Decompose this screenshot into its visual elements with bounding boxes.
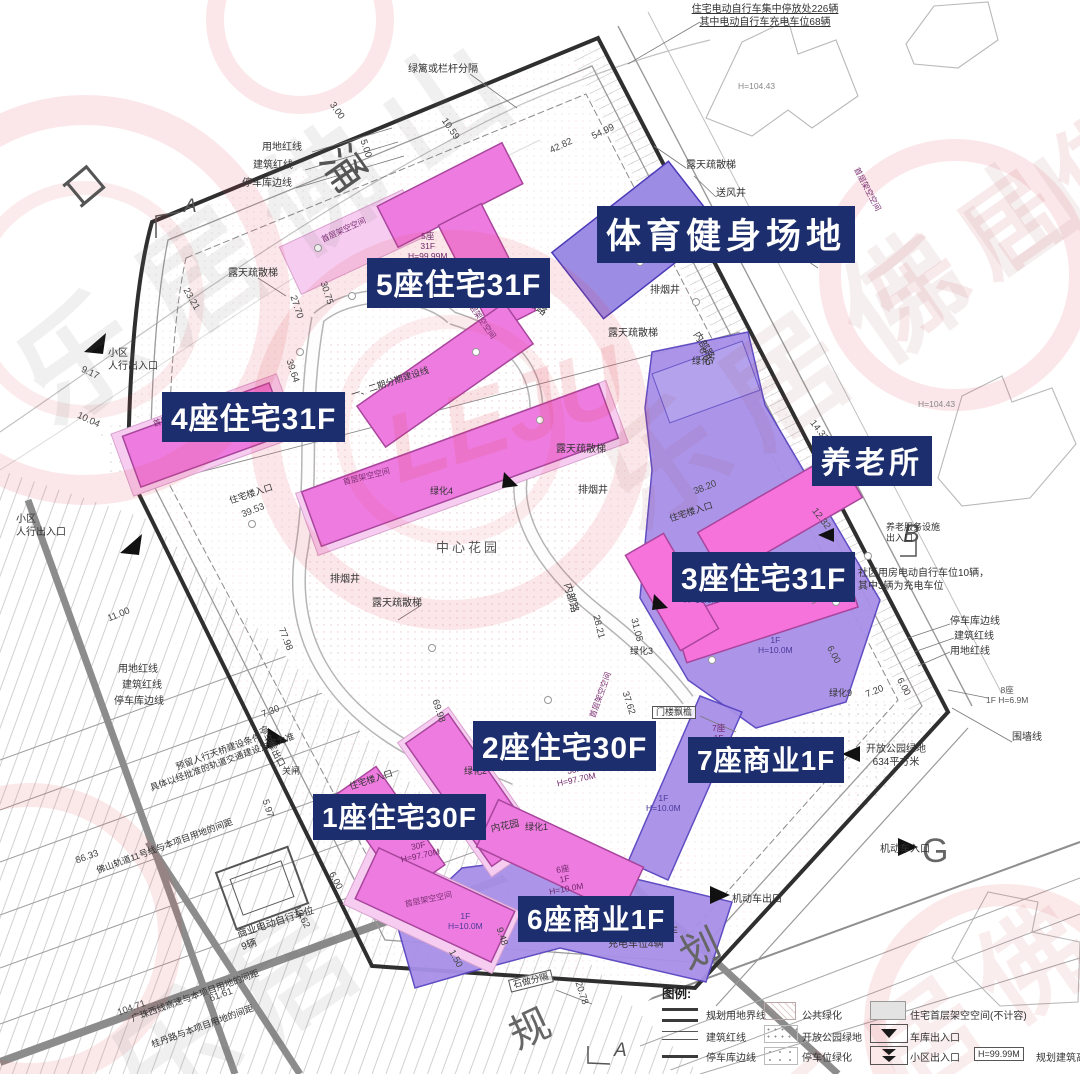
legend-swatch-stilt-space [870,1001,906,1020]
legend-title: 图例: [662,983,691,1002]
text-building-8: 8座 1F H=6.9M [986,686,1028,706]
note-community-bike: 社区用房电动自行车位10辆， 其中3辆为充电车位 [858,568,989,593]
label-building-1: 1座住宅30F [313,794,486,840]
text-1f-height: 1F H=10.0M [646,794,681,814]
note-green-1: 绿化1 [525,822,548,833]
note-smoke-well: 排烟井 [578,485,608,498]
label-building-2: 2座住宅30F [473,721,656,771]
note-smoke-well: 排烟井 [650,285,680,298]
note-care-facility-entrance: 养老服务设施 出入口 [886,522,940,545]
label-care-home: 养老所 [812,436,932,486]
legend-label: 开放公园绿地 [802,1029,862,1044]
note-escape-stair: 露天疏散梯 [556,444,606,457]
note-escape-stair: 露天疏散梯 [686,160,736,173]
note-motor-exit: 机动车出口 [732,894,782,907]
legend-height-value: H=99.99M [974,1047,1024,1061]
text-neighbor-height: H=104.43 [918,400,955,410]
note-garage-edge-line: 停车库边线 [114,696,164,709]
note-gate-eave: 门楼飘檐 [652,706,696,719]
text-1f-height: 1F H=10.0M [758,636,793,656]
legend-label: 小区出入口 [910,1049,960,1064]
note-hedge: 绿篱或栏杆分隔 [408,64,478,77]
legend-swatch-plan-boundary [662,1008,698,1022]
legend-symbol-community-gate [870,1046,908,1065]
legend-swatch-garage-edge [662,1055,698,1061]
legend-label: 建筑红线 [706,1029,746,1044]
legend-symbol-garage-gate [870,1024,908,1043]
note-smoke-well: 排烟井 [330,574,360,587]
legend-label: 规划用地界线 [706,1007,766,1022]
note-pedestrian-entrance: 小区 人行出入口 [108,348,158,373]
section-marker-a-top: A [184,196,197,218]
note-green-4: 绿化4 [430,486,453,497]
legend-label: 停车位绿化 [802,1049,852,1064]
text-1f-height: 1F H=10.0M [448,912,483,932]
legend-label: 车库出入口 [910,1029,960,1044]
label-building-7: 7座商业1F [688,737,844,783]
text-building-5: 5座 31F H=99.99M [408,232,447,261]
note-gate: 关闸 [282,766,300,777]
note-land-red-line: 用地红线 [262,142,302,155]
legend-swatch-public-green [764,1002,796,1020]
section-marker-a-bottom: A [614,1040,627,1062]
note-building-red-line: 建筑红线 [253,160,293,173]
legend-label: 停车库边线 [706,1049,756,1064]
note-green-3: 绿化3 [630,646,653,657]
note-land-red-line: 用地红线 [118,664,158,677]
legend: 图例: 规划用地界线 建筑红线 停车库边线 公共绿化 开放公园绿地 停车位绿化 … [652,983,1078,1073]
site-plan-page: LEJU 乐居佛山 乐居佛山 乐居 乐居佛山 乐居佛山 口 涌 规 划 G B … [0,0,1080,1074]
note-motor-entry: 机动车入口 [880,844,930,857]
note-escape-stair: 露天疏散梯 [228,268,278,281]
note-building-red-line: 建筑红线 [954,631,994,644]
note-green-7: 绿化7 [692,356,715,367]
note-garage-edge-line: 停车库边线 [950,616,1000,629]
label-building-4: 4座住宅31F [162,392,345,442]
label-building-3: 3座住宅31F [672,552,855,602]
note-building-red-line: 建筑红线 [122,680,162,693]
note-central-garden: 中心花园 [436,540,500,556]
note-green-9: 绿化9 [829,688,852,699]
label-sports-area: 体育健身场地 [597,206,855,263]
text-neighbor-height: H=104.43 [738,82,775,92]
legend-label: 住宅首层架空空间(不计容) [910,1007,1027,1022]
legend-label: 公共绿化 [802,1007,842,1022]
legend-swatch-parking-green [764,1047,798,1065]
label-building-5: 5座住宅31F [367,258,550,308]
legend-swatch-open-park-green [764,1025,798,1043]
note-air-well: 送风井 [716,188,746,201]
text-building-6: 6座 1F H=10.0M [545,862,584,897]
legend-height-label: 规划建筑高度 [1036,1049,1080,1064]
note-pedestrian-entrance: 小区 人行出入口 [16,514,66,539]
note-open-park-green: 开放公园绿地 634平方米 [866,744,926,769]
note-escape-stair: 露天疏散梯 [608,328,658,341]
label-building-6: 6座商业1F [518,896,674,942]
note-bike-parking-top: 住宅电动自行车集中停放处226辆 其中电动自行车充电车位68辆 [640,4,890,29]
note-escape-stair: 露天疏散梯 [372,598,422,611]
legend-swatch-building-red-line [662,1031,698,1040]
note-garage-edge-line: 停车库边线 [242,178,292,191]
note-land-red-line: 用地红线 [950,646,990,659]
note-wall-line: 围墙线 [1012,732,1042,745]
